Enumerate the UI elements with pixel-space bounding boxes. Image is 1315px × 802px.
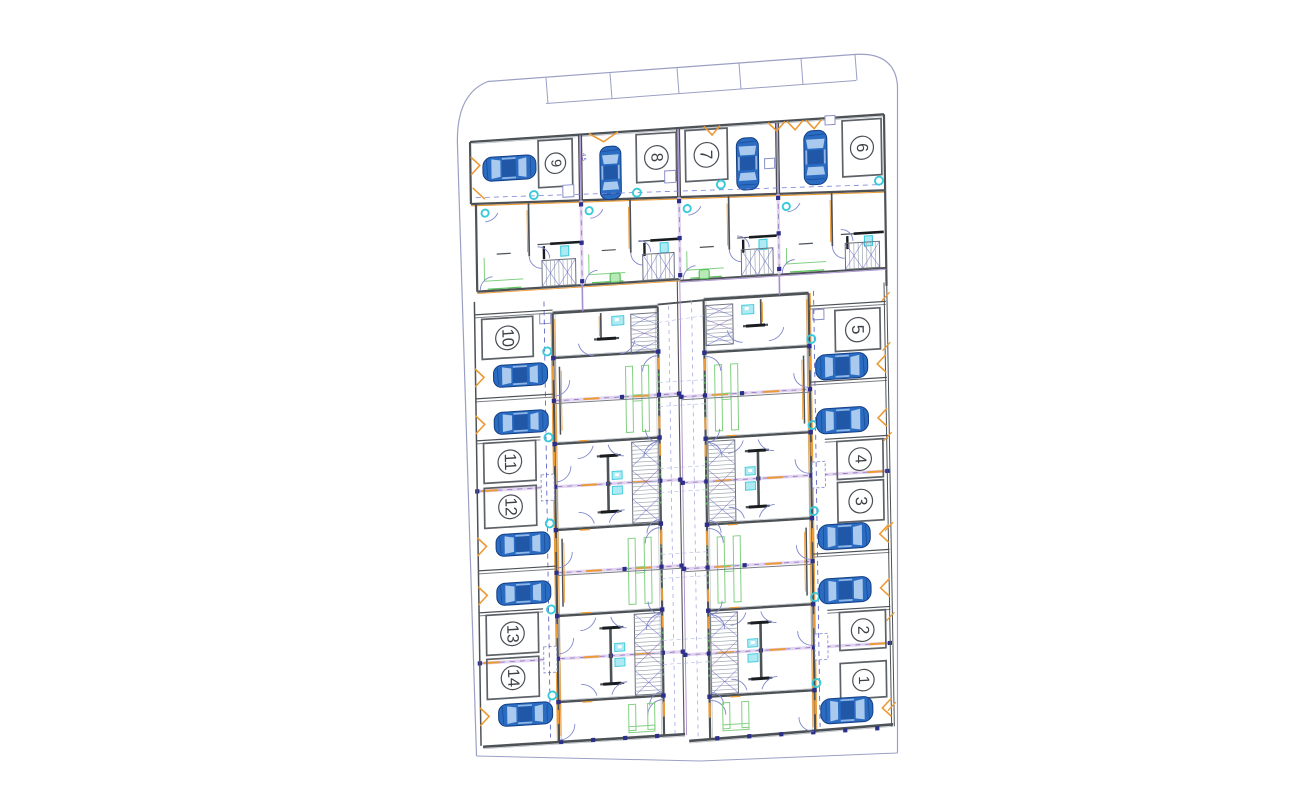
svg-text:14: 14 (504, 668, 522, 687)
svg-text:6: 6 (853, 143, 871, 153)
svg-text:10: 10 (498, 328, 516, 347)
svg-text:4: 4 (852, 454, 869, 464)
svg-text:12: 12 (501, 497, 519, 516)
svg-text:1: 1 (855, 675, 872, 684)
svg-text:11: 11 (501, 453, 519, 471)
svg-text:8: 8 (647, 152, 665, 162)
svg-text:9: 9 (547, 159, 563, 168)
svg-text:7: 7 (696, 149, 716, 160)
svg-text:4,5: 4,5 (580, 153, 586, 161)
svg-text:2: 2 (854, 625, 871, 635)
svg-text:13: 13 (503, 624, 521, 643)
svg-text:3: 3 (852, 496, 870, 506)
svg-text:5: 5 (848, 324, 867, 335)
